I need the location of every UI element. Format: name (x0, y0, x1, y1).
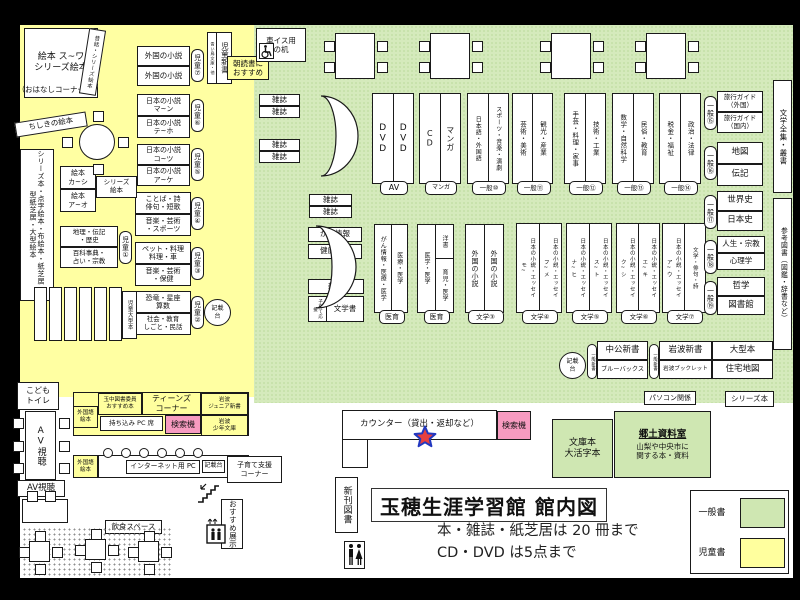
badge-jido-1: 児童① (119, 231, 132, 264)
unit-cd-manga: CDマンガ (419, 93, 461, 184)
badge-ippan-19: 一般⑲ (704, 281, 717, 315)
chair (93, 111, 104, 122)
kisaidai-2: 記載台 (559, 352, 586, 379)
chair (472, 62, 483, 73)
unit-ippan-14-tag: 一般⑭ (664, 181, 698, 195)
ehon-ka-shi: 絵本カ~シ (60, 166, 96, 189)
shinrigaku: 心理学 (717, 253, 765, 270)
blue-backs: ブルーバックス (597, 360, 648, 379)
chair (19, 547, 30, 558)
chair (593, 62, 604, 73)
tetsugaku: 哲学 (717, 277, 765, 296)
reading-table-2 (430, 33, 470, 79)
chair (13, 441, 24, 452)
series-bon: シリーズ本 (725, 391, 774, 407)
badge-jido-3: 児童③ (191, 247, 204, 280)
gaikokugo-ehon-2: 外国語絵本 (73, 455, 98, 478)
kotoba-shi-shelf: ことば・詩俳句・短歌 (135, 192, 191, 214)
chair (688, 41, 699, 52)
stool (139, 448, 149, 458)
iwanami-booklet: 岩波ブックレット (659, 360, 712, 379)
chair (324, 62, 335, 73)
round-table (79, 124, 115, 160)
zasshi-3b: 雑誌 (309, 206, 352, 218)
unit-med-2-tag: 医育 (424, 310, 450, 324)
chair (635, 41, 646, 52)
zasshi-1a: 雑誌 (259, 94, 300, 106)
jp-novels-kids-ma: 日本の小説マ~ン (137, 94, 190, 116)
chair (593, 41, 604, 52)
unit-med-1: がん情報・医療・医学医療・医学 (374, 224, 408, 313)
unit-ippan-10: 日本語・外国語スポーツ・音楽・演劇 (467, 93, 509, 184)
unit-med-2: 医学・医学洋書育児・医学 (417, 224, 454, 313)
chizu: 地図 (717, 142, 763, 164)
chair (91, 529, 102, 540)
chair (27, 491, 38, 502)
kisaidai-1: 記載台 (204, 299, 231, 326)
kyodo-shiryoshitsu: 郷土資料室山梨や中央市に関する本・資料 (614, 411, 711, 478)
legend-children-swatch (740, 538, 785, 568)
teens-corner: ティーンズコーナー (142, 392, 201, 415)
series-ehon: シリーズ絵本 (96, 176, 137, 198)
chair (377, 62, 388, 73)
sanko-tosho-strip: 参考図書（図鑑・辞書など） (773, 198, 792, 350)
av-table-1: AV視聴 (25, 411, 56, 480)
jp-novels-kids-ko: 日本の小説コ~ツ (137, 144, 190, 165)
kids-shelf-strip (49, 287, 62, 341)
unit-bungaku-7-tag: 文学⑦ (667, 310, 703, 324)
chair (472, 41, 483, 52)
unit-ippan-13: 数学・自然科学民俗・教育 (612, 93, 654, 184)
legend-children-label: 児童書 (694, 546, 730, 560)
chair (540, 41, 551, 52)
unit-ippan-13-tag: 一般⑬ (617, 181, 651, 195)
chair (377, 41, 388, 52)
chair (13, 463, 24, 474)
unit-bungaku-4: 日本の小説・エッセイモ~日本の小説・エッセイフ~メ (516, 223, 562, 313)
ongaku-hoken-shelf: 音楽・芸術・保健 (135, 264, 191, 286)
chair (93, 164, 104, 175)
unit-bungaku-5-tag: 文学⑤ (572, 310, 608, 324)
chair (688, 62, 699, 73)
badge-jido-4: 児童④ (191, 197, 204, 230)
dining-table-3 (138, 541, 159, 562)
chair (35, 531, 46, 542)
chiri-denki-shelf: 地理・伝記・歴史 (60, 226, 118, 247)
chair (635, 62, 646, 73)
chair (118, 137, 129, 148)
crescent-sofa-bottom (313, 224, 359, 310)
chair (13, 418, 24, 429)
jutaku-chizu: 住宅地図 (712, 360, 773, 379)
chair (144, 564, 155, 575)
zasshi-3a: 雑誌 (309, 194, 352, 206)
dining-table-2 (85, 539, 106, 560)
unit-ippan-11: 芸術・美術観光・産業 (512, 93, 553, 184)
unit-bungaku-3-tag: 文学③ (468, 310, 504, 324)
chair (59, 463, 70, 474)
chuko-shinsho: 中公新書 (597, 341, 648, 360)
unit-ippan-14: 税金・福祉政治・法律 (659, 93, 701, 184)
kisaidai-3: 記載台 (202, 460, 225, 473)
av-table-2 (22, 499, 68, 523)
dining-table-1 (29, 541, 50, 562)
badge-ippan-18: 一般⑱ (704, 240, 717, 274)
badge-jido-7: 児童⑦ (191, 49, 204, 82)
ongaku-sports-shelf: 音楽・芸術・スポーツ (135, 214, 191, 236)
kensakuki-2: 検索機 (165, 415, 201, 434)
unit-ippan-10-tag: 一般⑩ (472, 181, 506, 195)
badge-ippan-16: 一般⑯ (704, 146, 717, 180)
badge-jido-5: 児童⑤ (191, 148, 204, 181)
chair (108, 545, 119, 556)
legend-general-swatch (740, 498, 785, 528)
kodomo-toilet: こどもトイレ (17, 382, 59, 410)
nihonshi: 日本史 (717, 211, 763, 231)
unit-bungaku-7: 日本の小説・エッセイア~ウ文学・俳句・詩 (662, 223, 706, 313)
chair (35, 564, 46, 575)
reading-table-3 (551, 33, 591, 79)
kids-shelf-strip (79, 287, 92, 341)
zasshi-2b: 雑誌 (259, 151, 300, 163)
stool (121, 448, 131, 458)
jidou-ogata-label: 児童大型本 (122, 291, 137, 339)
unit-med-1-tag: 医育 (379, 310, 405, 324)
chair (91, 562, 102, 573)
chair (52, 547, 63, 558)
pasokon-kankei: パソコン関係 (644, 391, 696, 405)
badge-jido-6: 児童⑥ (191, 99, 204, 132)
legend-general-label: 一般書 (694, 506, 730, 520)
travel-guide-domestic: 旅行ガイド（国内） (717, 112, 763, 133)
badge-ippan-shinsho-1: 一般新書 (587, 344, 597, 379)
unit-dvd: DVDDVD (372, 93, 414, 184)
unit-cd-manga-tag: マンガ (425, 181, 457, 195)
badge-ippan-17: 一般⑰ (704, 195, 717, 229)
chair (144, 531, 155, 542)
chair (419, 41, 430, 52)
gaikokugo-ehon-1: 外国語絵本 (73, 406, 98, 428)
ehon-a-o: 絵本ア~オ (60, 189, 96, 212)
chair (75, 545, 86, 556)
stairs-icon (196, 480, 220, 503)
jp-novels-kids-a: 日本の小説ア~ケ (137, 165, 190, 186)
iwanami-junior: 岩波ジュニア新書 (201, 393, 248, 415)
unit-dvd-tag: AV (380, 181, 408, 195)
zasshi-1b: 雑誌 (259, 106, 300, 118)
series-tenji-ehon-shelf: シリーズ本・点字絵本・布絵本・紙芝居・大型紙芝居・大型絵本 (20, 149, 54, 301)
library-floor-map: 玉穂生涯学習館 館内図 本・雑誌・紙芝居は 20 冊まで CD・DVD は5点ま… (0, 0, 800, 600)
chair (540, 62, 551, 73)
denki: 伝記 (717, 164, 763, 186)
unit-bungaku-3: 外国の小説外国の小説 (465, 224, 504, 313)
badge-jido-2: 児童② (191, 296, 204, 329)
badge-ippan-15: 一般⑮ (704, 96, 717, 130)
zasshi-2a: 雑誌 (259, 139, 300, 151)
iwanami-shonen-bunko: 岩波少年文庫 (201, 415, 248, 436)
reading-table-4 (646, 33, 686, 79)
jp-novels-kids-te: 日本の小説テ~ホ (137, 116, 190, 138)
bungaku-zenshu-strip: 文学全集・叢書 (773, 80, 792, 193)
you-are-here-star (413, 425, 437, 449)
iwanami-shinsho: 岩波新書 (659, 341, 712, 360)
counter-leg (342, 439, 368, 468)
ogata-bon: 大型本 (712, 341, 773, 360)
kensakuki-1: 検索機 (497, 411, 531, 440)
chair (128, 547, 139, 558)
shakai-minwa-shelf: 社会・教育しごと・民話 (135, 313, 191, 335)
pet-ryori-shelf: ペット・料理料理・車 (135, 242, 191, 264)
tamachu-osusume: 玉中図書委員おすすめ本 (98, 393, 142, 415)
stool (193, 448, 203, 458)
jinsei-shukyo: 人生・宗教 (717, 236, 765, 253)
unit-bungaku-5: 日本の小説・エッセイナ~ヒ日本の小説・エッセイス~ト (566, 223, 612, 313)
foreign-novels-kids-1: 外国の小説 (137, 46, 190, 66)
reading-table-1 (335, 33, 375, 79)
unit-ippan-12-tag: 一般⑫ (569, 181, 603, 195)
chair (324, 41, 335, 52)
chair (161, 547, 172, 558)
elevator-icon (206, 518, 226, 544)
av-label-2: AV視聴 (17, 480, 65, 497)
stool (175, 448, 185, 458)
sekaishi: 世界史 (717, 191, 763, 211)
travel-guide-foreign: 旅行ガイド（外国） (717, 91, 763, 112)
loan-note-books: 本・雑誌・紙芝居は 20 冊まで (437, 519, 639, 540)
restroom-icon (346, 543, 364, 567)
chair (59, 441, 70, 452)
kyoryu-sansu-shelf: 恐竜・星座算数 (135, 291, 191, 313)
kids-shelf-strip (94, 287, 107, 341)
map-title: 玉穂生涯学習館 館内図 (371, 488, 607, 522)
stool (157, 448, 167, 458)
kids-shelf-strip (64, 287, 77, 341)
shinkan-tosho: 新刊図書 (335, 477, 358, 533)
unit-ippan-12: 手芸・料理・家事技術・工業 (564, 93, 606, 184)
kids-shelf-strip (109, 287, 122, 341)
crescent-sofa-top (318, 94, 360, 178)
kosodate-shien-corner: 子育て支援コーナー (227, 456, 282, 483)
unit-bungaku-6: 日本の小説・エッセイク~シ日本の小説・エッセイエ~キ (616, 223, 660, 313)
unit-bungaku-4-tag: 文学④ (522, 310, 558, 324)
loan-note-av: CD・DVD は5点まで (437, 541, 577, 562)
unit-bungaku-6-tag: 文学⑥ (621, 310, 657, 324)
bunkobon-daikatsuji: 文庫本大活字本 (552, 419, 613, 478)
chair (62, 137, 73, 148)
mochikomi-pc: 持ち込み PC 席 (100, 416, 163, 431)
toshokan: 図書館 (717, 296, 765, 315)
kids-shelf-strip (34, 287, 47, 341)
hyakka-uranai-shelf: 百科事典・占い・宗教 (60, 247, 118, 268)
chair (59, 418, 70, 429)
foreign-novels-kids-2: 外国の小説 (137, 66, 190, 86)
badge-ippan-shinsho-2: 一般新書 (649, 344, 659, 379)
unit-ippan-11-tag: 一般⑪ (517, 181, 551, 195)
stool (103, 448, 113, 458)
chair (419, 62, 430, 73)
wheelchair-icon (259, 43, 274, 59)
internet-pc-label: インターネット用 PC (126, 460, 200, 474)
chair (45, 491, 56, 502)
